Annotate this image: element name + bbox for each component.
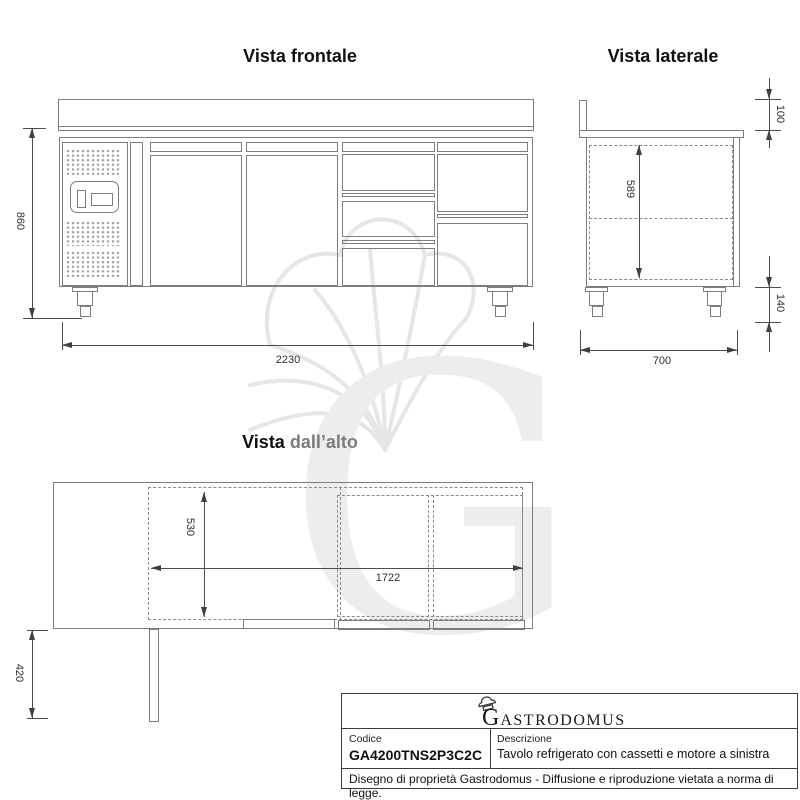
dim-2230-line	[62, 345, 533, 346]
dim-140-arrow-bottom	[766, 322, 772, 332]
drawing-layer: Vista frontale	[0, 0, 800, 800]
drawing-sheet: G Vista frontale	[0, 0, 800, 800]
dim-700-arrow-right	[727, 347, 737, 353]
dim-1722-arrow-right	[513, 565, 523, 571]
dim-420-arrow-bottom	[29, 708, 35, 718]
side-view-title: Vista laterale	[583, 46, 743, 67]
top-view-title: Vista dall’alto	[210, 432, 390, 453]
side-left-foot-leg	[589, 291, 604, 306]
title-block: GASTRODOMUS Codice GA4200TNS2P3C2C Descr…	[341, 693, 798, 789]
dim-589-arrow-bottom	[636, 268, 642, 278]
dim-140-label: 140	[774, 286, 786, 320]
dim-700-ext-right	[737, 330, 738, 355]
door-2	[246, 155, 338, 286]
drawer-3-front	[342, 248, 435, 286]
drawer-2-front	[342, 201, 435, 237]
door-1-top-rail	[150, 142, 242, 152]
brand-logo: GASTRODOMUS	[482, 705, 626, 732]
top-partition-dashed-2	[428, 495, 429, 617]
dim-860-ext-bottom	[23, 318, 82, 319]
side-interior-dashed	[589, 145, 733, 280]
drawer-column-2-top-rail	[437, 142, 528, 152]
front-divider-panel	[130, 142, 143, 286]
top-view-title-suffix: dall’alto	[290, 432, 358, 452]
dim-420-label: 420	[13, 653, 25, 693]
front-worktop-edge	[58, 126, 534, 131]
front-worktop	[58, 99, 534, 127]
ventilation-grille-bottom	[66, 251, 120, 277]
dim-860-arrow-top	[29, 128, 35, 138]
door-2-top-rail	[246, 142, 338, 152]
side-interior-dashed-shelf	[589, 218, 733, 219]
dim-860-arrow-bottom	[29, 308, 35, 318]
dim-1722-arrow-left	[151, 565, 161, 571]
dim-2230-label: 2230	[258, 354, 318, 366]
dim-700-arrow-left	[580, 347, 590, 353]
dim-530-arrow-top	[201, 492, 207, 502]
drawer-column-1-top-rail	[342, 142, 435, 152]
dim-2230-ext-right	[533, 322, 534, 350]
drawer-5-front	[437, 223, 528, 286]
ventilation-grille-middle	[66, 221, 120, 246]
drawer-gap-3	[437, 214, 528, 218]
dim-589-arrow-top	[636, 145, 642, 155]
dim-700-line	[580, 350, 737, 351]
drawer-1-front	[342, 154, 435, 191]
dim-860-line	[32, 128, 33, 318]
front-view-title: Vista frontale	[180, 46, 420, 67]
dim-420-ext-bottom	[27, 718, 48, 719]
top-drawer-front-strip-2	[433, 620, 525, 630]
dim-860-label: 860	[14, 201, 26, 241]
property-note: Disegno di proprietà Gastrodomus - Diffu…	[349, 772, 797, 800]
dim-100-label: 100	[774, 97, 786, 131]
dim-100-arrow-top	[766, 89, 772, 99]
descrizione-value: Tavolo refrigerato con cassetti e motore…	[497, 747, 769, 761]
dim-140-line	[769, 256, 770, 352]
ventilation-grille-top	[66, 149, 120, 175]
dim-420-line	[32, 630, 33, 718]
brand-name: ASTRODOMUS	[500, 712, 625, 729]
front-left-foot-tip	[80, 306, 91, 317]
top-drawer-front-strip-1	[338, 620, 430, 630]
top-motor-side-panel	[149, 629, 159, 722]
dim-1722-line	[151, 568, 523, 569]
dim-100-arrow-bottom	[766, 130, 772, 140]
title-block-divider-2	[342, 768, 797, 769]
codice-value: GA4200TNS2P3C2C	[349, 747, 482, 763]
dim-420-arrow-top	[29, 630, 35, 640]
top-partition-dashed-3	[433, 495, 434, 617]
side-left-foot-tip	[592, 306, 603, 317]
dim-1722-label: 1722	[358, 572, 418, 584]
dim-530-arrow-bottom	[201, 607, 207, 617]
drawer-gap-2	[342, 240, 435, 244]
descrizione-label: Descrizione	[497, 733, 552, 745]
drawer-4-front	[437, 154, 528, 212]
dim-2230-arrow-right	[523, 342, 533, 348]
side-right-foot-tip	[710, 306, 721, 317]
dim-140-arrow-top	[766, 277, 772, 287]
side-right-foot-leg	[707, 291, 722, 306]
door-1	[150, 155, 242, 286]
control-panel-display	[91, 193, 113, 206]
title-block-column-divider	[490, 728, 491, 768]
dim-700-label: 700	[642, 355, 682, 367]
top-drawer-zone-dashed	[337, 495, 523, 617]
front-right-foot-tip	[495, 306, 506, 317]
dim-589-label: 589	[624, 169, 636, 209]
dim-2230-arrow-left	[62, 342, 72, 348]
dim-530-line	[204, 492, 205, 617]
dim-530-label: 530	[184, 507, 196, 547]
drawer-gap-1	[342, 193, 435, 197]
front-left-foot-leg	[77, 291, 93, 306]
top-view-title-prefix: Vista	[242, 432, 285, 452]
codice-label: Codice	[349, 733, 382, 745]
side-backsplash	[579, 100, 587, 131]
dim-589-line	[639, 145, 640, 278]
top-door-front-strip	[243, 619, 335, 629]
front-right-foot-leg	[492, 291, 508, 306]
control-panel-button	[77, 190, 86, 208]
side-front-wall-line	[733, 137, 734, 287]
